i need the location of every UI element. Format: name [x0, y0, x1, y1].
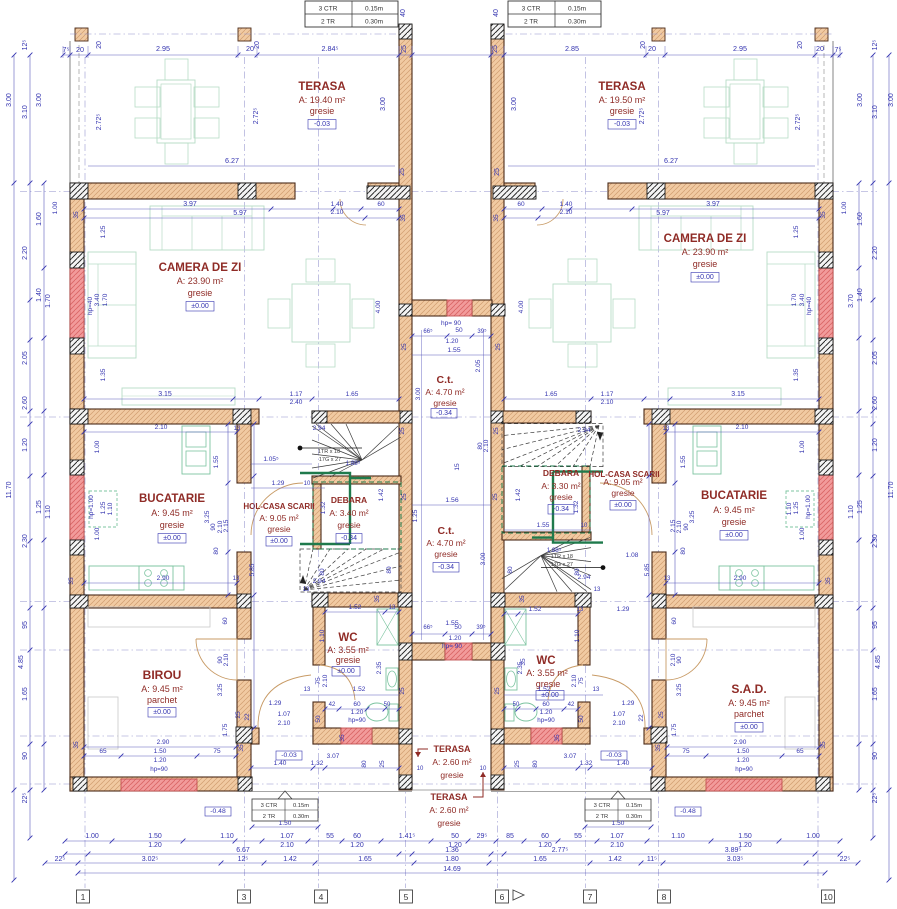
svg-text:A: 3.40 m²: A: 3.40 m² [329, 508, 368, 518]
svg-text:4.00: 4.00 [518, 300, 525, 313]
svg-text:7⁵: 7⁵ [835, 45, 842, 54]
svg-text:1.35: 1.35 [100, 368, 107, 381]
svg-text:±0.00: ±0.00 [191, 303, 209, 310]
svg-text:A: 9.45 m²: A: 9.45 m² [151, 508, 193, 518]
svg-text:-0.03: -0.03 [314, 121, 330, 128]
svg-text:TERASA: TERASA [298, 81, 345, 93]
svg-text:60: 60 [671, 617, 678, 625]
svg-text:±0.00: ±0.00 [337, 668, 355, 675]
svg-text:80: 80 [507, 566, 514, 574]
svg-text:hp=90: hp=90 [735, 766, 753, 773]
svg-text:22⁵: 22⁵ [55, 856, 66, 863]
svg-text:1.10: 1.10 [786, 502, 793, 515]
svg-text:1.20: 1.20 [154, 757, 167, 764]
svg-text:25: 25 [493, 427, 500, 435]
svg-text:13: 13 [234, 426, 241, 432]
svg-text:3.15: 3.15 [731, 391, 745, 398]
svg-text:0.15m: 0.15m [365, 6, 383, 13]
svg-text:gresie: gresie [437, 818, 460, 828]
svg-text:29⁵: 29⁵ [477, 833, 488, 840]
svg-text:hp=90: hp=90 [150, 766, 168, 773]
svg-text:TERASA: TERASA [433, 744, 471, 754]
svg-text:2.95: 2.95 [156, 44, 170, 53]
svg-text:3.40: 3.40 [799, 293, 806, 306]
svg-text:3: 3 [242, 892, 247, 902]
svg-text:0.15m: 0.15m [293, 803, 309, 809]
svg-text:14.69: 14.69 [443, 866, 461, 873]
svg-text:1.10: 1.10 [848, 505, 855, 519]
svg-text:1.20: 1.20 [540, 709, 553, 716]
svg-text:75: 75 [213, 748, 221, 755]
svg-text:2.10: 2.10 [601, 399, 614, 406]
svg-text:0.15m: 0.15m [626, 803, 642, 809]
svg-text:3 CTR: 3 CTR [594, 803, 611, 809]
svg-text:75: 75 [578, 677, 585, 685]
svg-text:11⁵: 11⁵ [647, 856, 657, 863]
svg-text:39⁵: 39⁵ [476, 624, 486, 631]
svg-text:5.85: 5.85 [249, 563, 256, 576]
svg-text:2.72⁵: 2.72⁵ [96, 114, 103, 131]
svg-text:5.97: 5.97 [233, 210, 247, 217]
svg-text:60: 60 [353, 833, 361, 840]
svg-text:±0.00: ±0.00 [696, 274, 714, 281]
svg-text:2.10: 2.10 [155, 424, 168, 431]
svg-text:13: 13 [233, 576, 240, 582]
svg-text:WC: WC [536, 655, 555, 667]
svg-text:1.00: 1.00 [52, 201, 59, 214]
svg-text:1.52: 1.52 [353, 686, 366, 693]
svg-text:1.20: 1.20 [350, 842, 364, 849]
svg-text:66⁵: 66⁵ [423, 328, 433, 335]
svg-text:2.10: 2.10 [322, 674, 329, 687]
svg-text:1.52: 1.52 [349, 604, 362, 611]
svg-text:1.65: 1.65 [346, 391, 359, 398]
svg-text:A: 9.05 m²: A: 9.05 m² [603, 477, 642, 487]
svg-text:2.10: 2.10 [278, 720, 291, 727]
svg-text:parchet: parchet [734, 709, 765, 719]
svg-text:1.07: 1.07 [613, 711, 626, 718]
svg-text:10: 10 [417, 766, 424, 772]
svg-text:3.97: 3.97 [183, 201, 197, 208]
svg-text:6.27: 6.27 [225, 156, 239, 165]
svg-text:4.85: 4.85 [875, 655, 882, 669]
svg-text:2.35: 2.35 [376, 661, 383, 674]
svg-text:1.35: 1.35 [793, 368, 800, 381]
svg-text:1.20: 1.20 [449, 635, 462, 642]
svg-text:3 CTR: 3 CTR [319, 6, 338, 13]
svg-text:1.00: 1.00 [85, 833, 99, 840]
svg-text:1.32: 1.32 [311, 760, 324, 767]
svg-text:2.90: 2.90 [734, 575, 747, 582]
svg-text:1.20: 1.20 [872, 438, 879, 452]
svg-text:3.25: 3.25 [676, 683, 683, 696]
svg-text:4.00: 4.00 [375, 300, 382, 313]
svg-text:60: 60 [542, 701, 550, 708]
svg-text:42: 42 [329, 702, 336, 708]
svg-text:1.65: 1.65 [533, 856, 547, 863]
svg-text:1.50: 1.50 [738, 833, 752, 840]
svg-text:35: 35 [820, 741, 827, 749]
svg-text:2.20: 2.20 [872, 246, 879, 260]
svg-text:3.40: 3.40 [94, 293, 101, 306]
svg-text:2.30: 2.30 [22, 534, 29, 548]
svg-text:gresie: gresie [433, 398, 456, 408]
svg-text:1.88⁵: 1.88⁵ [547, 547, 562, 554]
svg-text:2.94: 2.94 [313, 578, 326, 585]
svg-text:1.50: 1.50 [154, 748, 167, 755]
svg-text:1.20: 1.20 [351, 709, 364, 716]
svg-text:2.72⁵: 2.72⁵ [253, 108, 260, 125]
svg-text:1.40: 1.40 [331, 201, 344, 208]
svg-text:60: 60 [377, 201, 385, 208]
svg-text:1.60: 1.60 [36, 212, 43, 226]
svg-text:2.10: 2.10 [560, 209, 573, 216]
svg-text:1.25: 1.25 [100, 501, 107, 514]
svg-text:35: 35 [493, 214, 500, 222]
svg-text:2.30: 2.30 [872, 534, 879, 548]
svg-text:hp= 90: hp= 90 [441, 320, 461, 327]
svg-text:-0.34: -0.34 [438, 564, 454, 571]
svg-text:2.84⁵: 2.84⁵ [322, 44, 339, 53]
svg-text:±0.00: ±0.00 [614, 502, 632, 509]
svg-text:A: 3.30 m²: A: 3.30 m² [541, 481, 580, 491]
svg-text:WC: WC [338, 632, 357, 644]
svg-text:1.41⁵: 1.41⁵ [399, 833, 416, 840]
svg-text:3.00: 3.00 [380, 97, 387, 111]
svg-text:75: 75 [315, 677, 322, 685]
svg-text:90: 90 [22, 752, 29, 760]
svg-text:hp=40: hp=40 [87, 296, 94, 315]
svg-text:35: 35 [554, 734, 561, 742]
svg-text:1.42: 1.42 [283, 856, 297, 863]
svg-text:1TR x 18: 1TR x 18 [318, 449, 340, 455]
svg-text:2.10: 2.10 [223, 653, 230, 666]
svg-text:50: 50 [455, 327, 463, 334]
svg-text:4.85: 4.85 [18, 655, 25, 669]
svg-text:A: 9.45 m²: A: 9.45 m² [141, 684, 183, 694]
svg-text:1.52: 1.52 [538, 686, 551, 693]
svg-text:±0.00: ±0.00 [541, 692, 559, 699]
svg-text:4: 4 [319, 892, 324, 902]
svg-text:1.40: 1.40 [857, 288, 864, 302]
svg-text:1.00: 1.00 [799, 440, 806, 453]
svg-text:15: 15 [454, 463, 461, 471]
svg-text:80: 80 [213, 547, 220, 555]
svg-text:3.00: 3.00 [415, 387, 422, 400]
svg-text:2.10: 2.10 [613, 720, 626, 727]
svg-text:gresie: gresie [160, 520, 185, 530]
svg-text:3 CTR: 3 CTR [261, 803, 278, 809]
svg-text:65: 65 [99, 748, 107, 755]
svg-text:-0.34: -0.34 [553, 506, 569, 513]
svg-text:25: 25 [492, 45, 499, 53]
svg-text:25: 25 [494, 168, 501, 176]
svg-text:1.32: 1.32 [320, 501, 327, 514]
svg-text:1.17: 1.17 [601, 391, 614, 398]
svg-text:35: 35 [519, 595, 526, 603]
svg-text:-0.48: -0.48 [210, 808, 226, 815]
svg-text:25: 25 [514, 760, 521, 768]
svg-text:-0.34: -0.34 [436, 410, 452, 417]
svg-text:1TR x 18: 1TR x 18 [551, 554, 573, 560]
svg-text:1.20: 1.20 [538, 842, 552, 849]
svg-text:50: 50 [315, 715, 322, 723]
svg-text:22: 22 [244, 713, 251, 721]
svg-text:A: 2.60 m²: A: 2.60 m² [429, 805, 468, 815]
svg-text:-0.34: -0.34 [341, 535, 357, 542]
svg-text:25: 25 [401, 493, 408, 501]
svg-text:60: 60 [541, 833, 549, 840]
svg-text:10: 10 [823, 892, 833, 902]
svg-text:hp=40: hp=40 [806, 296, 813, 315]
svg-text:C.t.: C.t. [438, 525, 455, 537]
svg-text:90: 90 [676, 656, 683, 664]
svg-text:12⁵: 12⁵ [238, 856, 249, 863]
svg-text:10: 10 [304, 481, 311, 487]
svg-text:1.07: 1.07 [280, 833, 294, 840]
svg-text:1.40: 1.40 [274, 760, 287, 767]
svg-text:20: 20 [96, 41, 103, 49]
svg-text:CAMERA DE ZI: CAMERA DE ZI [159, 262, 242, 274]
svg-text:gresie: gresie [336, 655, 361, 665]
svg-text:parchet: parchet [147, 695, 178, 705]
svg-text:gresie: gresie [188, 288, 213, 298]
svg-text:S.A.D.: S.A.D. [731, 682, 766, 696]
svg-text:35: 35 [374, 595, 381, 603]
svg-text:gresie: gresie [434, 549, 457, 559]
svg-text:-0.03: -0.03 [606, 752, 622, 759]
svg-text:2.10: 2.10 [736, 424, 749, 431]
svg-text:gresie: gresie [610, 106, 635, 116]
svg-text:95: 95 [22, 621, 29, 629]
svg-text:hp=90: hp=90 [348, 717, 366, 724]
svg-text:A: 23.90 m²: A: 23.90 m² [177, 276, 224, 286]
svg-text:35: 35 [825, 577, 832, 585]
svg-text:0.30m: 0.30m [626, 814, 642, 820]
svg-text:35: 35 [520, 658, 527, 666]
svg-text:3.70: 3.70 [848, 294, 855, 308]
svg-text:±0.00: ±0.00 [740, 724, 758, 731]
svg-text:5.85: 5.85 [644, 563, 651, 576]
svg-text:1.56: 1.56 [445, 497, 458, 504]
svg-text:gresie: gresie [611, 488, 634, 498]
svg-text:1.75: 1.75 [222, 723, 229, 736]
svg-text:±0.00: ±0.00 [163, 535, 181, 542]
svg-text:2.05: 2.05 [475, 359, 482, 372]
svg-text:gresie: gresie [693, 259, 718, 269]
svg-text:1.88⁵: 1.88⁵ [346, 460, 361, 467]
svg-text:±0.00: ±0.00 [270, 538, 288, 545]
svg-text:1.80: 1.80 [445, 856, 459, 863]
svg-text:2 TR: 2 TR [321, 19, 335, 26]
svg-text:17G x 27: 17G x 27 [551, 562, 573, 568]
svg-text:1.07: 1.07 [278, 711, 291, 718]
svg-text:11.70: 11.70 [888, 481, 895, 498]
svg-text:A: 4.70 m²: A: 4.70 m² [426, 538, 465, 548]
svg-text:2.72⁵: 2.72⁵ [639, 108, 646, 125]
svg-text:2.90: 2.90 [157, 575, 170, 582]
svg-text:A: 2.60 m²: A: 2.60 m² [432, 757, 471, 767]
svg-text:35: 35 [73, 741, 80, 749]
svg-text:gresie: gresie [337, 520, 360, 530]
svg-text:3.15: 3.15 [158, 391, 172, 398]
svg-text:25: 25 [658, 711, 665, 719]
svg-text:35: 35 [73, 211, 80, 219]
svg-text:10: 10 [480, 766, 487, 772]
svg-text:CAMERA DE ZI: CAMERA DE ZI [664, 233, 747, 245]
svg-text:50: 50 [384, 702, 391, 708]
svg-text:8: 8 [662, 892, 667, 902]
svg-text:A: 9.45 m²: A: 9.45 m² [713, 505, 755, 515]
svg-text:55: 55 [574, 833, 582, 840]
svg-text:3.03⁵: 3.03⁵ [727, 856, 744, 863]
svg-text:1.20: 1.20 [22, 438, 29, 452]
svg-text:2.10: 2.10 [331, 209, 344, 216]
svg-text:25: 25 [399, 168, 406, 176]
svg-text:BUCATARIE: BUCATARIE [139, 493, 205, 505]
svg-text:1.20: 1.20 [148, 842, 162, 849]
svg-text:hp=1.00: hp=1.00 [88, 495, 95, 519]
svg-text:7: 7 [588, 892, 593, 902]
svg-text:2.10: 2.10 [610, 842, 624, 849]
svg-text:1.10: 1.10 [45, 505, 52, 519]
svg-text:13: 13 [577, 607, 584, 613]
svg-text:20: 20 [76, 45, 84, 54]
svg-text:1.50: 1.50 [612, 820, 625, 827]
svg-text:1.70: 1.70 [102, 293, 109, 306]
svg-text:1.52: 1.52 [529, 606, 542, 613]
svg-text:hp= 90: hp= 90 [442, 643, 462, 650]
svg-text:2.10: 2.10 [676, 520, 683, 533]
svg-text:25: 25 [401, 343, 408, 351]
svg-text:3 CTR: 3 CTR [522, 6, 541, 13]
svg-text:1.29: 1.29 [269, 700, 282, 707]
svg-text:1.25: 1.25 [793, 225, 800, 238]
svg-text:80: 80 [361, 760, 368, 768]
svg-text:3.07: 3.07 [564, 753, 577, 760]
svg-text:2.20: 2.20 [22, 246, 29, 260]
svg-text:40: 40 [400, 9, 407, 17]
svg-text:90: 90 [683, 523, 690, 531]
svg-text:1.40: 1.40 [617, 760, 630, 767]
svg-text:25: 25 [494, 687, 501, 695]
svg-text:1.00: 1.00 [94, 440, 101, 453]
svg-text:2.90: 2.90 [734, 739, 747, 746]
svg-text:3.97: 3.97 [706, 201, 720, 208]
svg-text:A: 19.40 m²: A: 19.40 m² [299, 95, 346, 105]
svg-text:40: 40 [493, 9, 500, 17]
svg-text:1.42: 1.42 [608, 856, 622, 863]
svg-text:1.70: 1.70 [791, 293, 798, 306]
svg-text:0.30m: 0.30m [568, 19, 586, 26]
svg-text:1.10: 1.10 [671, 833, 685, 840]
svg-text:2.10: 2.10 [483, 439, 490, 452]
svg-text:80: 80 [532, 760, 539, 768]
svg-text:A: 23.90 m²: A: 23.90 m² [682, 247, 729, 257]
svg-text:60: 60 [353, 701, 361, 708]
svg-text:1.05⁵: 1.05⁵ [263, 456, 279, 463]
svg-text:80: 80 [319, 568, 326, 576]
svg-text:2.77⁵: 2.77⁵ [552, 847, 569, 854]
svg-text:35: 35 [655, 744, 662, 752]
svg-text:5.97: 5.97 [656, 210, 670, 217]
svg-text:1.55: 1.55 [680, 455, 687, 468]
svg-text:10: 10 [581, 523, 588, 529]
svg-text:1.00: 1.00 [94, 527, 101, 540]
svg-text:20: 20 [797, 41, 804, 49]
svg-text:2.05: 2.05 [872, 351, 879, 365]
svg-text:3.00: 3.00 [6, 93, 13, 107]
svg-text:85: 85 [506, 833, 514, 840]
svg-text:2 TR: 2 TR [596, 814, 608, 820]
svg-text:1.07: 1.07 [610, 833, 624, 840]
svg-text:55: 55 [326, 833, 334, 840]
svg-text:3.25: 3.25 [217, 683, 224, 696]
svg-text:TERASA: TERASA [598, 81, 645, 93]
svg-text:60: 60 [222, 617, 229, 625]
svg-text:2.60: 2.60 [872, 396, 879, 410]
svg-text:25: 25 [399, 687, 406, 695]
svg-text:-0.03: -0.03 [281, 752, 297, 759]
svg-text:-0.48: -0.48 [680, 808, 696, 815]
svg-text:0.30m: 0.30m [365, 19, 383, 26]
svg-text:7⁵: 7⁵ [63, 45, 70, 54]
svg-text:25: 25 [379, 760, 386, 768]
svg-text:90: 90 [872, 752, 879, 760]
svg-text:50: 50 [578, 715, 585, 723]
svg-text:80: 80 [386, 566, 393, 574]
svg-text:20: 20 [648, 44, 656, 53]
svg-text:1.10: 1.10 [107, 502, 114, 515]
svg-text:50: 50 [451, 833, 459, 840]
svg-text:2.94: 2.94 [313, 425, 326, 432]
svg-text:2.95: 2.95 [733, 44, 747, 53]
svg-text:22: 22 [638, 714, 645, 722]
svg-text:A: 9.45 m²: A: 9.45 m² [728, 698, 770, 708]
svg-text:BUCATARIE: BUCATARIE [701, 490, 767, 502]
svg-text:A: 19.50 m²: A: 19.50 m² [599, 95, 646, 105]
svg-text:22⁵: 22⁵ [872, 793, 879, 804]
svg-text:3.25: 3.25 [689, 510, 696, 523]
svg-text:1.65: 1.65 [872, 687, 879, 701]
svg-text:1.60: 1.60 [857, 212, 864, 226]
svg-text:2.15: 2.15 [670, 519, 677, 532]
svg-text:90: 90 [210, 523, 217, 531]
svg-text:2 TR: 2 TR [263, 814, 275, 820]
svg-text:1.65: 1.65 [22, 687, 29, 701]
svg-text:3.00: 3.00 [36, 93, 43, 107]
svg-text:2.90: 2.90 [157, 739, 170, 746]
svg-text:1.29: 1.29 [272, 480, 285, 487]
svg-text:42: 42 [568, 702, 575, 708]
svg-text:80: 80 [680, 547, 687, 555]
svg-text:6.27: 6.27 [664, 156, 678, 165]
svg-text:50: 50 [454, 624, 462, 631]
svg-text:13: 13 [664, 576, 671, 582]
svg-text:±0.00: ±0.00 [725, 532, 743, 539]
svg-text:1.75: 1.75 [671, 723, 678, 736]
svg-text:1: 1 [81, 892, 86, 902]
svg-text:2.60: 2.60 [22, 396, 29, 410]
svg-text:1.10: 1.10 [574, 629, 581, 642]
svg-text:gresie: gresie [440, 770, 463, 780]
svg-text:3.00: 3.00 [857, 93, 864, 107]
svg-text:25: 25 [235, 711, 242, 719]
svg-text:hp=90: hp=90 [537, 717, 555, 724]
svg-text:2.10: 2.10 [670, 653, 677, 666]
svg-text:25: 25 [495, 343, 502, 351]
svg-text:13: 13 [303, 587, 310, 593]
